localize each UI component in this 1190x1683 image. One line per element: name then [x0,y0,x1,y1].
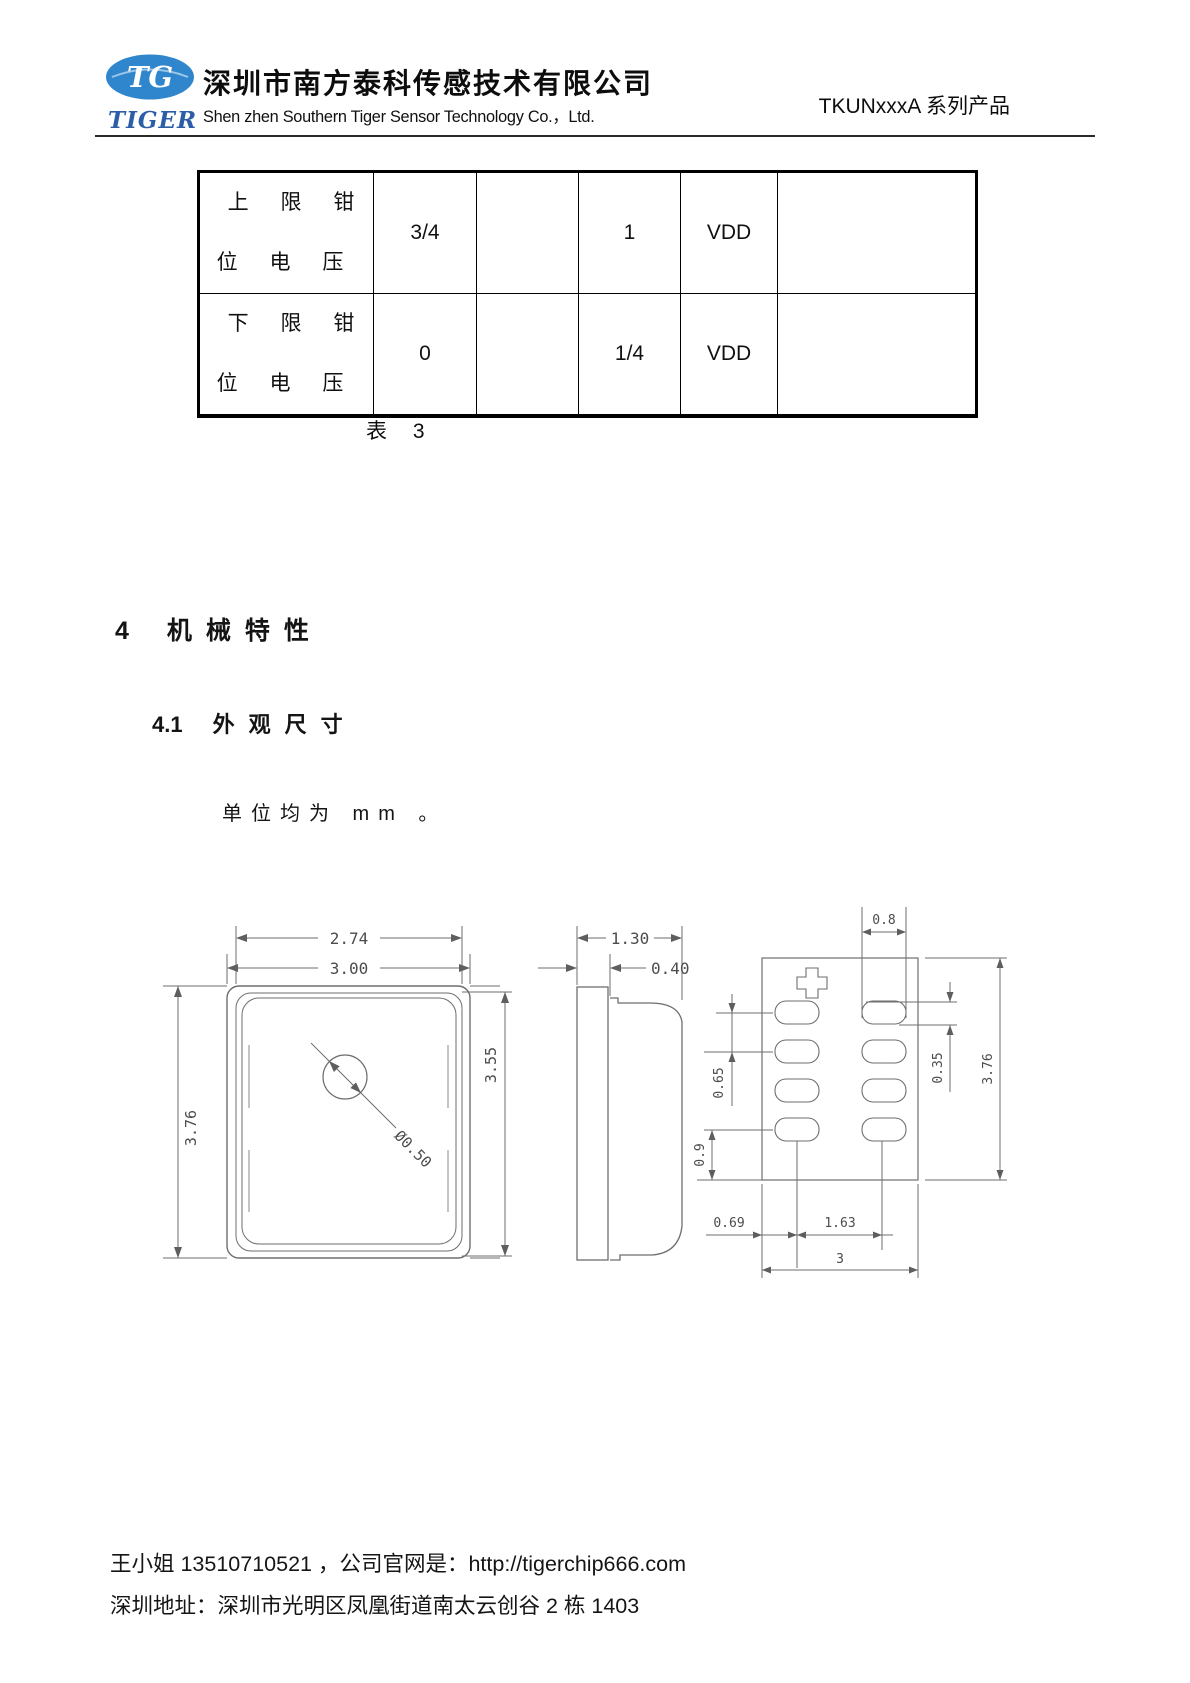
company-name-en: Shen zhen Southern Tiger Sensor Technolo… [203,102,594,127]
dim-hole-diameter: Ø0.50 [391,1127,436,1172]
cell-note [778,294,977,417]
dim-pad-edge-gap: 0.9 [693,1143,708,1166]
section-number: 4 [115,617,129,645]
cell-min: 0 [374,294,477,417]
unit-note: 单位均为 mm 。 [222,797,447,826]
top-view: 2.74 3.00 3.76 3.55 Ø0.50 [163,926,512,1258]
cell-max: 1/4 [579,294,681,417]
datasheet-page: TG TIGER 深圳市南方泰科传感技术有限公司 Shen zhen South… [0,0,1190,1683]
side-view: 1.30 0.40 [538,926,690,1260]
footer-address: 深圳地址：深圳市光明区凤凰街道南太云创谷 2 栋 1403 [110,1589,639,1620]
table-caption: 表 3 [366,415,435,445]
dim-side-width: 1.30 [611,929,650,948]
cell-typ [477,294,579,417]
company-logo: TG TIGER [104,54,214,136]
dim-bottom-height: 3.76 [981,1053,996,1084]
package-dimension-drawing: 2.74 3.00 3.76 3.55 Ø0.50 1.30 0.40 [0,850,1190,1290]
cell-note [778,172,977,294]
pin1-cross-mark [797,968,827,998]
dim-pad-col-span: 1.63 [824,1216,855,1231]
dim-top-height-right: 3.55 [482,1047,500,1083]
logo-tg-text: TG [127,60,173,94]
section-heading: 4机械特性 [115,611,323,647]
dim-top-height-left: 3.76 [182,1110,200,1146]
cell-typ [477,172,579,294]
cell-min: 3/4 [374,172,477,294]
cell-unit: VDD [681,294,778,417]
cell-max: 1 [579,172,681,294]
row-label: 下 限 钳 位 电 压 [199,294,374,417]
bottom-view: 0.8 3.76 0.35 0.65 0.9 0.69 1.63 3 [693,907,1007,1278]
cell-unit: VDD [681,172,778,294]
clamp-voltage-table: 上 限 钳 位 电 压 3/4 1 VDD 下 限 钳 位 电 压 0 1/4 … [197,170,978,418]
table-row: 下 限 钳 位 电 压 0 1/4 VDD [199,294,977,417]
logo-tiger-text: TIGER [108,107,197,134]
dim-pad-width: 0.8 [872,913,895,928]
subsection-number: 4.1 [152,712,183,737]
dim-pad-col-offset: 0.69 [713,1216,744,1231]
dim-bottom-width: 3 [836,1252,844,1267]
dim-top-width-inner: 2.74 [330,929,369,948]
subsection-title: 外观尺寸 [213,712,357,737]
row-label: 上 限 钳 位 电 压 [199,172,374,294]
section-title: 机械特性 [167,617,323,645]
subsection-heading: 4.1外观尺寸 [152,707,357,739]
footer-contact: 王小姐 13510710521 ，公司官网是：http://tigerchip6… [110,1547,686,1578]
company-name-cn: 深圳市南方泰科传感技术有限公司 [203,62,653,102]
dim-pad-height: 0.35 [931,1052,946,1083]
solder-pads [775,1001,906,1141]
dim-pad-pitch: 0.65 [712,1067,727,1098]
header-divider [95,135,1095,137]
table-row: 上 限 钳 位 电 压 3/4 1 VDD [199,172,977,294]
product-series-title: TKUNxxxA 系列产品 [760,90,1010,120]
dim-top-width-outer: 3.00 [330,959,369,978]
dim-side-lid-thickness: 0.40 [651,959,690,978]
